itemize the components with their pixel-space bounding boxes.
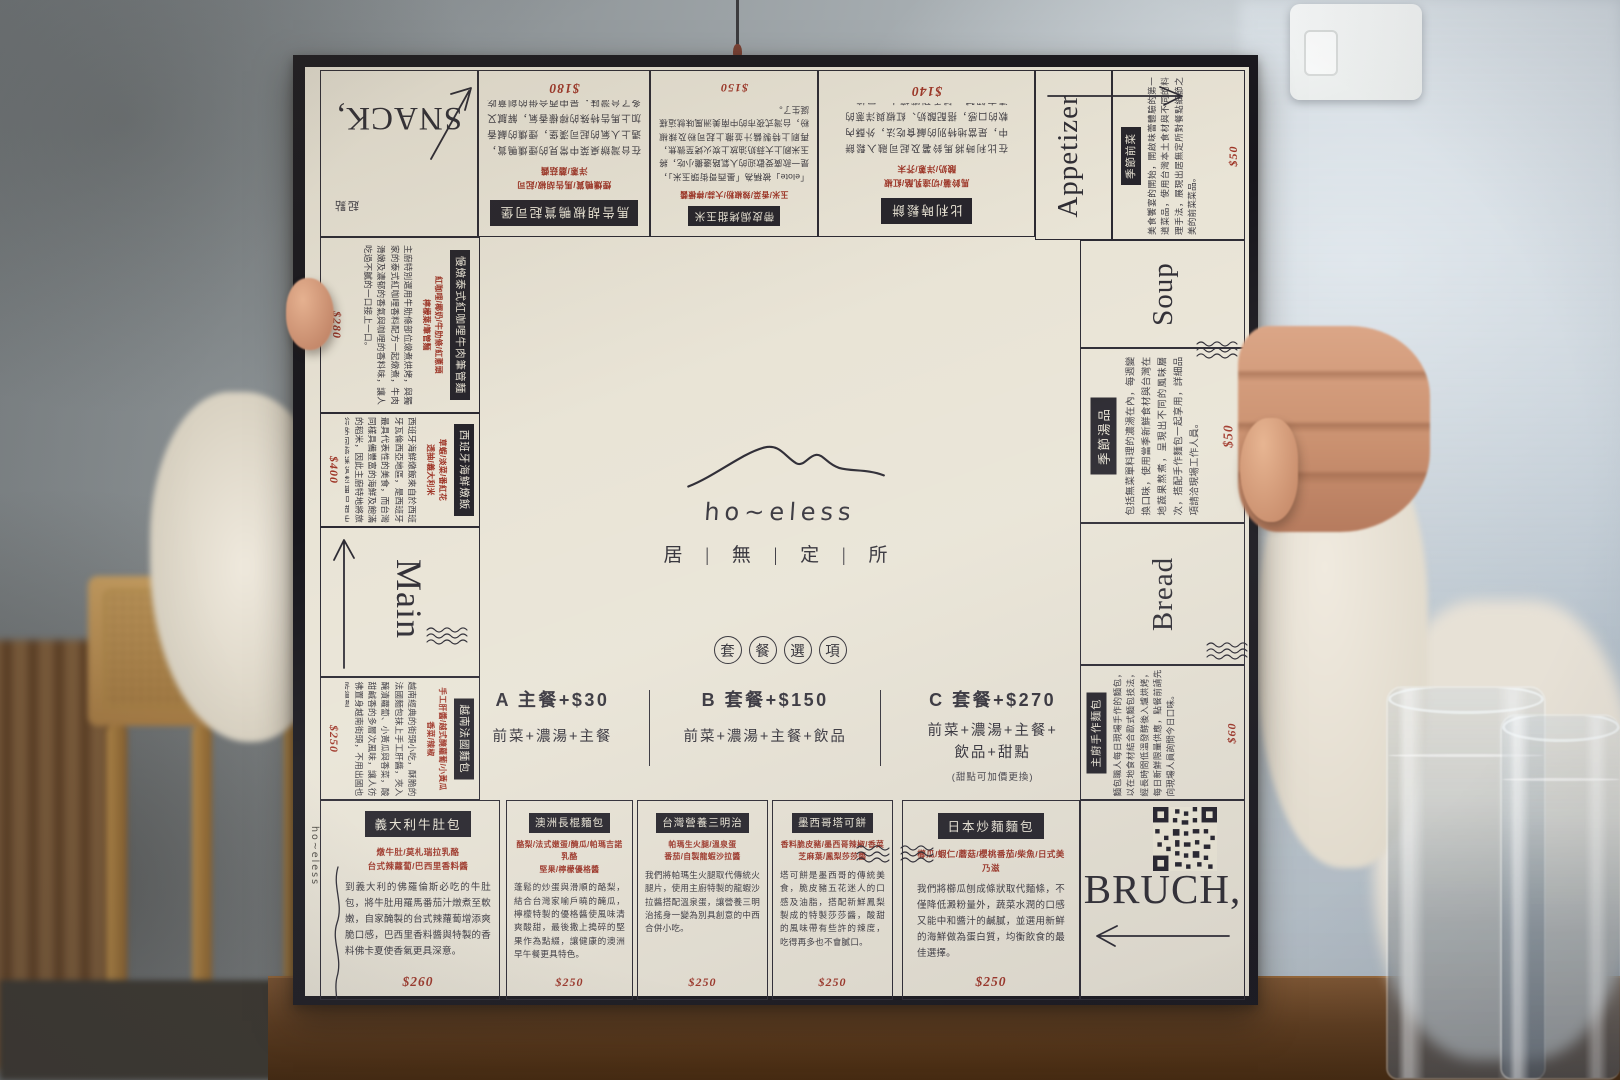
option-divider — [649, 690, 650, 766]
dish-price: $150 — [720, 80, 748, 95]
dish-description: 美食饗宴的開始，開啟味蕾體驗的第一道菜品，使用台灣本土食材與不同的料理手法，展現… — [1146, 77, 1222, 235]
menu-card: 澳洲長棍麵包 酪梨/法式嫩蛋/醃瓜/帕瑪吉諾乳酪 堅果/檸檬優格醬 蓬鬆的炒蛋與… — [506, 800, 633, 1000]
wave-ornament-icon — [425, 627, 471, 647]
dish-description: 在比利時將馬鈴薯及起司融入鬆餅中，是當地特別的鹹食吃法，外酥內軟的口感，搭配酸奶… — [845, 103, 1008, 155]
finger — [172, 286, 300, 316]
dish-description: 「elote」被稱為「墨西哥街頭玉米」，是一款廣受歡迎的人氣路邊攤小吃，將玉米刷… — [659, 99, 809, 183]
wall-access-panel — [1290, 4, 1422, 100]
dish-price: $250 — [556, 975, 584, 990]
menu-card: 台灣營養三明治 帕瑪生火腿/溫泉蛋 番茄/自製龍蝦沙拉醬 我們將帕瑪生火腿取代傳… — [637, 800, 768, 1000]
dish-ingredients: 草蝦/淡菜/番紅花 透抽/義大利米 — [423, 439, 448, 502]
dish-title: 義大利牛肚包 — [365, 811, 470, 837]
dish-ingredients: 玉米/香菜/辣椒粉/大蒜/檸檬醬 — [680, 188, 789, 200]
corner-appetizer: Appetizer 季節前菜 美食饗宴的開始，開啟味蕾體驗的第一道菜品，使用台灣… — [1035, 70, 1245, 240]
option-note: (甜點可加價更換) — [905, 769, 1080, 783]
badge-char: 套 — [714, 636, 742, 664]
decorative-curve-icon — [329, 865, 345, 1000]
set-option-a: A 主餐+$30 前菜+濃湯+主餐 — [480, 686, 625, 749]
dish-price: $180 — [549, 80, 580, 96]
option-name: B 套餐+$150 — [674, 686, 856, 712]
dish-price: $250 — [819, 975, 847, 990]
dish-title: 台灣營養三明治 — [656, 813, 749, 833]
start-stamp: 起點 — [333, 198, 359, 214]
water-line — [1502, 778, 1620, 781]
dish-ingredients: 帕瑪生火腿/溫泉蛋 番茄/自製龍蝦沙拉醬 — [664, 839, 740, 864]
dish-description: 塔可餅是墨西哥的傳統美食，脆皮豬五花迷人的口感及油脂，搭配新鮮鳳梨製成的特製莎莎… — [780, 869, 885, 971]
dish-price: $60 — [1224, 722, 1239, 743]
dish-title: 日本炒麵麵包 — [938, 813, 1043, 839]
dish-title: 帶皮焗烤甜玉米 — [688, 206, 781, 226]
option-detail: 前菜+濃湯+主餐+ 飲品+甜點 — [905, 721, 1080, 765]
dish-title: 主廚手作麵包 — [1086, 692, 1106, 773]
dish-title: 慢燉泰式紅咖哩牛肉筆管麵 — [450, 250, 470, 400]
qr-code — [1153, 807, 1217, 871]
soup-label: Soup — [1146, 262, 1179, 326]
option-divider — [880, 690, 881, 766]
edge-handwriting: ho~eless — [306, 826, 320, 898]
badge-char: 項 — [819, 636, 847, 664]
dish-price: $50 — [1220, 424, 1236, 447]
menu-card: 西班牙海鮮燉飯 草蝦/淡菜/番紅花 透抽/義大利米 西班牙海鮮燉飯來自於西班牙瓦… — [320, 413, 480, 527]
dish-price: $400 — [326, 456, 341, 484]
bread-label: Bread — [1146, 557, 1179, 631]
wave-ornament-icon — [855, 845, 939, 865]
dish-title: 墨西哥塔可餅 — [792, 813, 873, 833]
dish-title: 比利時鬆餅 — [881, 198, 972, 224]
dish-title: 季節前菜 — [1121, 127, 1141, 185]
dish-title: 澳洲長棍麵包 — [529, 813, 610, 833]
dish-title: 馬告胡椒鴨賞起司堡 — [490, 200, 639, 226]
dish-description: 越南經典的街頭小吃，酥脆的法國麵包抹上手工肝醬，夾入醃漬蘿蔔、小黃瓜與香菜，酸甜… — [345, 681, 418, 796]
left-thumb — [286, 278, 334, 350]
dish-ingredients: 櫛瓜/蝦仁/蘑菇/櫻桃番茄/柴魚/日式美乃滋 — [917, 848, 1065, 875]
dish-price: $250 — [976, 974, 1007, 990]
dish-description: 我們將櫛瓜刨成條狀取代麵條，不僅降低澱粉量外，蔬菜水潤的口感又能中和醬汁的鹹膩，… — [917, 882, 1065, 970]
menu-card: 比利時鬆餅 馬鈴薯/切達乳酪/紅椒 酸奶/洋蔥/芥末 在比利時將馬鈴薯及起司融入… — [818, 70, 1035, 237]
dish-price: $50 — [1226, 146, 1241, 167]
main-label: Main — [388, 559, 430, 639]
corner-main: Main — [320, 527, 480, 677]
wave-ornament-icon — [1205, 642, 1251, 662]
glass-highlight — [1502, 716, 1620, 1078]
hanging-cord — [736, 0, 739, 50]
right-thumb — [1240, 418, 1298, 522]
wave-ornament-icon — [1195, 341, 1241, 361]
brand-logo-text: ho~eless — [479, 498, 1081, 526]
dish-description: 主廚特別選用牛肋條部位燉煮烘烤，與獨家的泰式紅咖哩香料配方一起燉煮，牛肉滑嫩及濃… — [348, 245, 414, 405]
dish-description: 我們將帕瑪生火腿取代傳統火腿片，使用主廚特製的龍蝦沙拉醬搭配溫泉蛋，讓營養三明治… — [645, 869, 760, 971]
dish-ingredients: 燉牛肚/莫札瑞拉乳酪 台式辣蘿蔔/巴西里香料醬 — [368, 846, 469, 873]
menu-card: 慢燉泰式紅咖哩牛肉筆管麵 紅咖哩/椰奶/牛肋條/紅蔥頭 檸檬葉/筆管麵 主廚特別… — [320, 237, 480, 413]
dish-description: 包括無菜單料理的濃湯在內，每週變換口味，使用當季新鮮食材與台灣在地蔬果熬煮，呈現… — [1123, 356, 1216, 515]
divider-soup: Soup — [1080, 240, 1245, 348]
menu-card: 帶皮焗烤甜玉米 玉米/香菜/辣椒粉/大蒜/檸檬醬 「elote」被稱為「墨西哥街… — [650, 70, 818, 237]
option-detail: 前菜+濃湯+主餐 — [480, 727, 625, 749]
water-glass — [1500, 714, 1620, 1080]
set-menu-badge: 套 餐 選 項 — [480, 636, 1080, 664]
finger — [180, 322, 300, 352]
dish-price: $260 — [403, 974, 434, 990]
dish-description: 蓬鬆的炒蛋與滑順的酪梨，結合台灣家喻戶曉的醃瓜，檸檬特製的優格醬使風味清爽酸甜，… — [514, 881, 625, 971]
menu-card: 馬告胡椒鴨賞起司堡 煙燻鴨賞/馬告胡椒/起司 洋蔥/蘑菇醬 在台灣辦桌菜中常見的… — [478, 70, 650, 237]
dish-description: 麵包職人每日現場手作的麵包，以在地食材結合歐式麵包技法，經長時間低溫發酵後入爐烘… — [1111, 669, 1220, 796]
dish-price: $250 — [326, 725, 341, 753]
brand-cjk-name: 居 | 無 | 定 | 所 — [480, 540, 1080, 567]
menu-card: 日本炒麵麵包 櫛瓜/蝦仁/蘑菇/櫻桃番茄/柴魚/日式美乃滋 我們將櫛瓜刨成條狀取… — [902, 800, 1080, 1000]
badge-char: 選 — [784, 636, 812, 664]
dish-title: 越南法國麵包 — [454, 698, 474, 779]
dish-ingredients: 馬鈴薯/切達乳酪/紅椒 酸奶/洋蔥/芥末 — [884, 162, 970, 189]
dish-title: 西班牙海鮮燉飯 — [454, 424, 474, 517]
appetizer-label: Appetizer — [1052, 94, 1085, 217]
dish-description: 到義大利的佛羅倫斯必吃的牛肚包，將牛肚用羅馬番茄汁燉煮至軟嫩，自家醃製的台式辣蘿… — [345, 880, 491, 970]
set-option-b: B 套餐+$150 前菜+濃湯+主餐+飲品 — [674, 686, 856, 749]
corner-bruch: BRUCH, — [1080, 800, 1245, 1000]
board-center: ho~eless 居 | 無 | 定 | 所 套 餐 選 項 A 主餐+$30 … — [480, 240, 1080, 800]
menu-card: 越南法國麵包 手工肝醬/越式醃蘿蔔/小黃瓜 香菜/辣椒 越南經典的街頭小吃，酥脆… — [320, 677, 480, 800]
menu-board: SNACK, 起點 馬告胡椒鴨賞起司堡 煙燻鴨賞/馬告胡椒/起司 洋蔥/蘑菇醬 … — [293, 55, 1258, 1005]
option-name: A 主餐+$30 — [480, 686, 625, 712]
dish-title: 季節湯品 — [1090, 398, 1116, 474]
corner-snack: SNACK, 起點 — [320, 70, 478, 237]
menu-card: 義大利牛肚包 燉牛肚/莫札瑞拉乳酪 台式辣蘿蔔/巴西里香料醬 到義大利的佛羅倫斯… — [320, 800, 500, 1000]
menu-card: 墨西哥塔可餅 香料脆皮豬/墨西哥辣椒/香菜 芝麻葉/鳳梨莎莎醬 塔可餅是墨西哥的… — [772, 800, 893, 1000]
set-menu-options: A 主餐+$30 前菜+濃湯+主餐 B 套餐+$150 前菜+濃湯+主餐+飲品 … — [480, 686, 1080, 783]
dish-description: 西班牙海鮮燉飯來自於西班牙瓦倫西亞地區，是西班牙最具代表性的美食，而台灣同樣具備… — [345, 417, 418, 523]
dish-ingredients: 紅咖哩/椰奶/牛肋條/紅蔥頭 檸檬葉/筆管麵 — [419, 276, 444, 374]
menu-card: 季節湯品 包括無菜單料理的濃湯在內，每週變換口味，使用當季新鮮食材與台灣在地蔬果… — [1080, 348, 1245, 523]
menu-card: 主廚手作麵包 麵包職人每日現場手作的麵包，以在地食材結合歐式麵包技法，經長時間低… — [1080, 665, 1245, 800]
set-option-c: C 套餐+$270 前菜+濃湯+主餐+ 飲品+甜點 (甜點可加價更換) — [905, 686, 1080, 783]
badge-char: 餐 — [749, 636, 777, 664]
snack-arrow-icon — [425, 81, 477, 163]
dish-price: $140 — [911, 83, 942, 99]
dish-ingredients: 手工肝醬/越式醃蘿蔔/小黃瓜 香菜/辣椒 — [423, 687, 448, 791]
dish-ingredients: 煙燻鴨賞/馬告胡椒/起司 洋蔥/蘑菇醬 — [517, 164, 612, 191]
dish-description: 在台灣辦桌菜中常見的煙燻鴨賞，遇上人氣的起司漢堡，煙燻的鹹香加上馬告特殊的檸檬香… — [487, 100, 641, 157]
bruch-label: BRUCH, — [1081, 865, 1244, 913]
finger — [174, 252, 292, 279]
mountain-logo-icon — [678, 440, 896, 494]
floor-shadow — [0, 980, 300, 1080]
option-detail: 前菜+濃湯+主餐+飲品 — [674, 727, 856, 749]
option-name: C 套餐+$270 — [905, 686, 1080, 712]
dish-price: $250 — [689, 975, 717, 990]
dish-ingredients: 酪梨/法式嫩蛋/醃瓜/帕瑪吉諾乳酪 堅果/檸檬優格醬 — [514, 839, 625, 876]
main-arrow-icon — [331, 536, 357, 670]
bruch-arrow-icon — [1093, 923, 1231, 949]
